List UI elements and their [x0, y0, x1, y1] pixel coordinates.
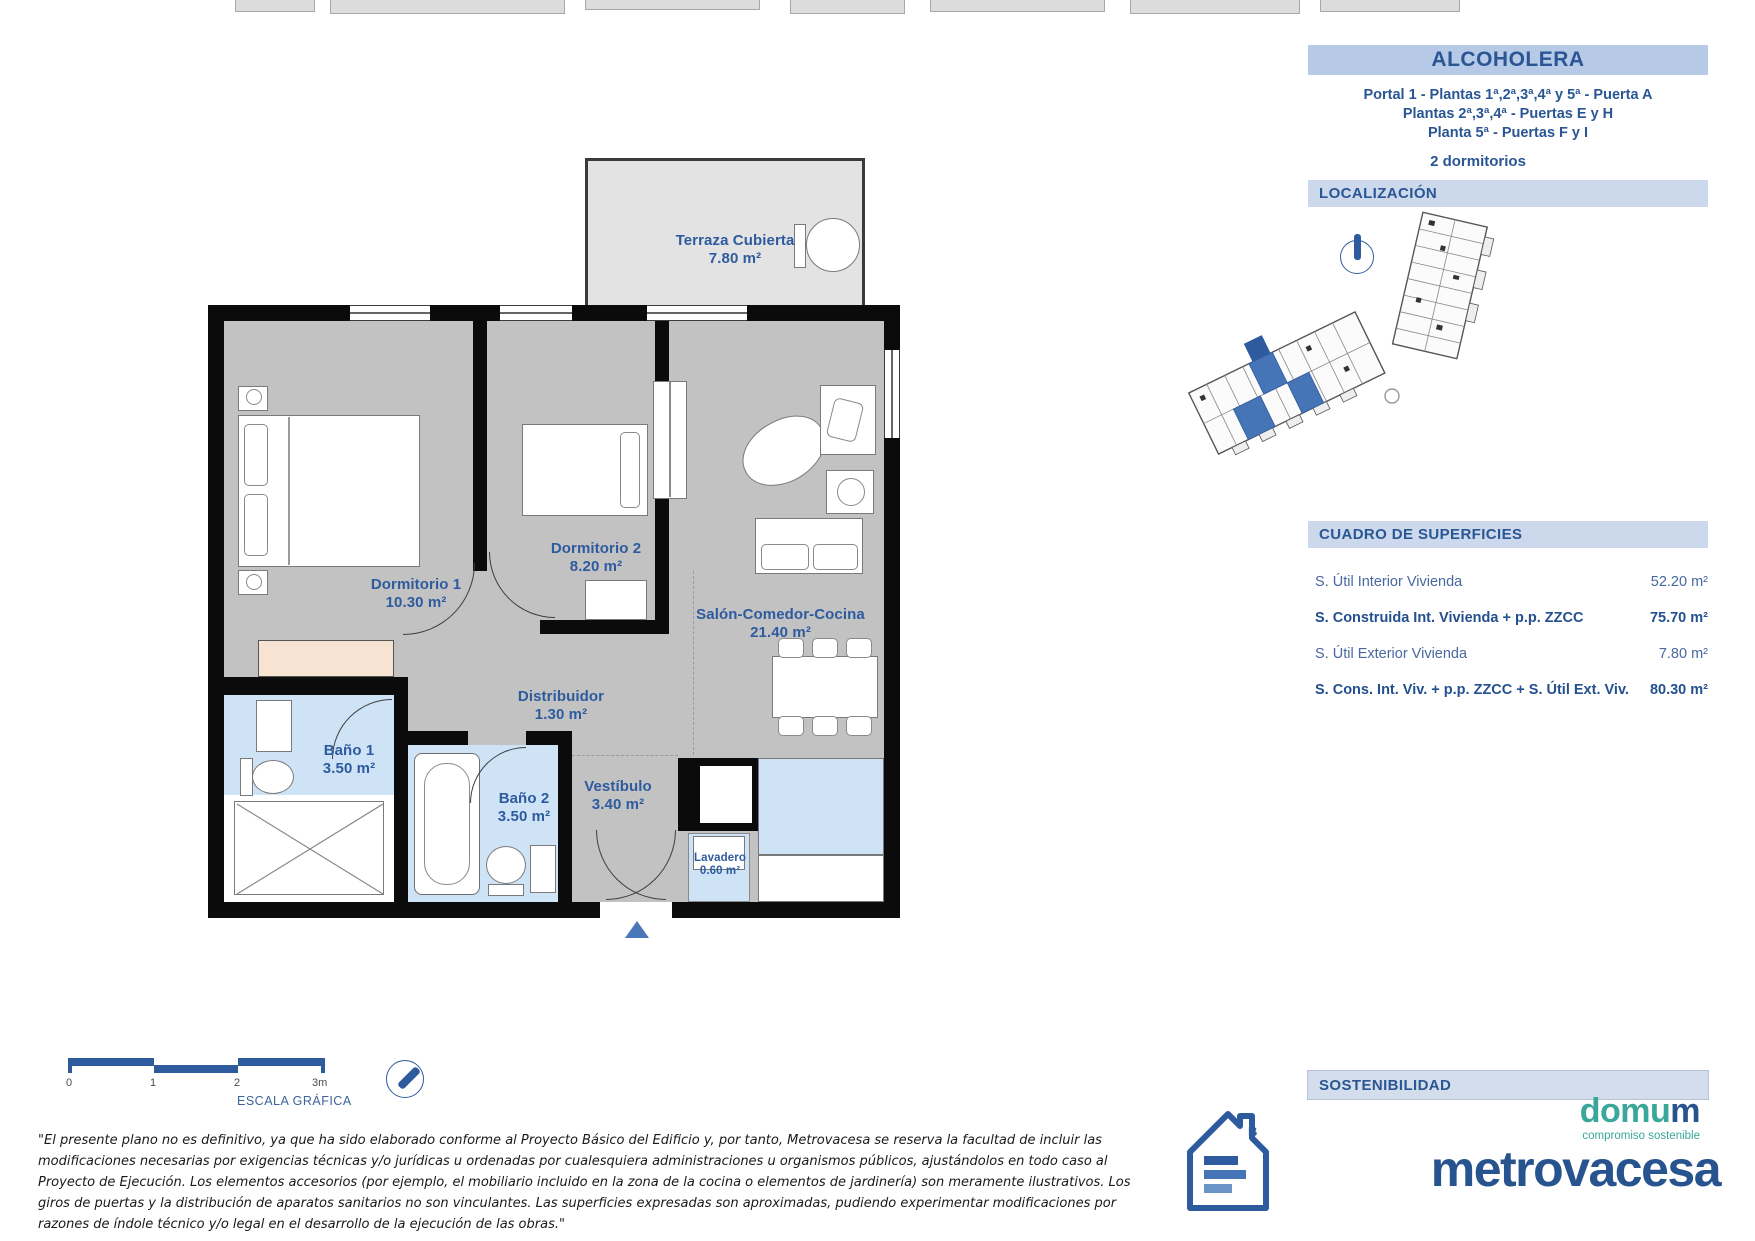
page-title: ALCOHOLERA	[1431, 48, 1584, 71]
disclaimer-text: "El presente plano no es definitivo, ya …	[38, 1130, 1158, 1235]
wall	[224, 677, 394, 695]
surface-value: 80.30 m²	[1650, 682, 1708, 698]
energy-house-icon: B	[1182, 1096, 1277, 1216]
project-title-bar: ALCOHOLERA	[1308, 45, 1708, 75]
portal-line: Portal 1 - Plantas 1ª,2ª,3ª,4ª y 5ª - Pu…	[1308, 86, 1708, 105]
chair	[812, 716, 838, 736]
shower-tray-lines	[235, 802, 385, 896]
room-name: Lavadero	[668, 852, 772, 865]
pillow	[244, 424, 268, 486]
desk	[585, 580, 647, 620]
pillow	[244, 494, 268, 556]
room-area: 1.30 m²	[474, 706, 648, 724]
surface-row: S. Útil Interior Vivienda 52.20 m²	[1315, 574, 1708, 594]
room-area: 0.60 m²	[668, 865, 772, 878]
dining-table	[772, 656, 878, 718]
room-area: 3.50 m²	[274, 760, 424, 778]
wardrobe	[258, 640, 394, 677]
room-name: Baño 1	[274, 742, 424, 760]
room-name: Vestíbulo	[548, 778, 688, 796]
terrace-sliding-door	[647, 305, 747, 321]
bathroom-sink	[530, 845, 556, 893]
section-bar-localizacion: LOCALIZACIÓN	[1308, 180, 1708, 207]
surface-row: S. Construida Int. Vivienda + p.p. ZZCC …	[1315, 610, 1708, 630]
kitchen-appliance-band	[758, 855, 884, 902]
scale-tick: 0	[66, 1077, 72, 1089]
portal-info: Portal 1 - Plantas 1ª,2ª,3ª,4ª y 5ª - Pu…	[1308, 86, 1708, 143]
sofa-cushion	[813, 544, 858, 570]
surface-label: S. Construida Int. Vivienda + p.p. ZZCC	[1315, 610, 1583, 626]
surface-label: S. Cons. Int. Viv. + p.p. ZZCC + S. Útil…	[1315, 682, 1629, 698]
wall	[540, 620, 669, 634]
top-fragment	[1320, 0, 1460, 12]
top-fragment	[585, 0, 760, 10]
entrance-opening	[600, 902, 672, 918]
surface-label: S. Útil Interior Vivienda	[1315, 574, 1462, 590]
window	[350, 305, 430, 321]
room-label-bano1: Baño 1 3.50 m²	[274, 742, 424, 777]
outer-wall-left	[208, 305, 224, 918]
lamp-icon	[246, 574, 262, 590]
zone-dashed-line	[693, 571, 694, 755]
room-name: Terraza Cubierta	[630, 232, 840, 250]
wall	[473, 321, 487, 571]
top-fragment	[1130, 0, 1300, 14]
room-area: 3.40 m²	[548, 796, 688, 814]
scale-tick: 3m	[312, 1077, 327, 1089]
room-name: Dormitorio 2	[510, 540, 682, 558]
wall	[526, 731, 558, 745]
domum-logo-suffix: m	[1670, 1092, 1700, 1130]
room-area: 7.80 m²	[630, 250, 840, 268]
domum-logo-prefix: domu	[1580, 1092, 1671, 1130]
zone-dashed-line	[572, 755, 678, 756]
sink-bowl	[837, 478, 865, 506]
room-label-vestibulo: Vestíbulo 3.40 m²	[548, 778, 688, 813]
outer-wall-bottom	[208, 902, 900, 918]
top-fragment	[930, 0, 1105, 12]
section-label: LOCALIZACIÓN	[1319, 185, 1437, 202]
room-label-lavadero: Lavadero 0.60 m²	[668, 852, 772, 878]
scale-segment	[154, 1065, 238, 1073]
lamp-icon	[246, 389, 262, 405]
bed-fold-line	[288, 417, 290, 565]
scale-tick: 2	[234, 1077, 240, 1089]
scale-segment	[70, 1058, 154, 1066]
room-label-dormitorio1: Dormitorio 1 10.30 m²	[330, 576, 502, 611]
surface-row: S. Útil Exterior Vivienda 7.80 m²	[1315, 646, 1708, 666]
room-name: Dormitorio 1	[330, 576, 502, 594]
window	[500, 305, 572, 321]
room-label-dormitorio2: Dormitorio 2 8.20 m²	[510, 540, 682, 575]
floorplan-sheet: Terraza Cubierta 7.80 m² Dormitorio 1 10…	[0, 0, 1755, 1241]
surface-value: 52.20 m²	[1651, 574, 1708, 590]
shower-tray	[234, 801, 384, 895]
scale-tick: 1	[150, 1077, 156, 1089]
kitchen-counter	[758, 758, 884, 855]
built-in-closet	[653, 381, 687, 499]
top-fragment	[790, 0, 905, 14]
room-area: 8.20 m²	[510, 558, 682, 576]
room-area: 21.40 m²	[663, 624, 898, 642]
shaft-box	[700, 766, 752, 823]
metrovacesa-logo: metrovacesa	[1270, 1140, 1720, 1198]
section-label: CUADRO DE SUPERFICIES	[1319, 526, 1522, 543]
scale-bar: 0 1 2 3m	[60, 1054, 340, 1094]
wall	[655, 321, 669, 381]
top-fragment	[235, 0, 315, 12]
chair	[846, 716, 872, 736]
site-building-right	[1393, 212, 1496, 360]
room-name: Salón-Comedor-Cocina	[663, 606, 898, 624]
site-building-left	[1180, 294, 1388, 461]
scale-cap	[321, 1058, 325, 1073]
portal-line: Planta 5ª - Puertas F y I	[1308, 124, 1708, 143]
portal-line: Plantas 2ª,3ª,4ª - Puertas E y H	[1308, 105, 1708, 124]
surface-value: 7.80 m²	[1659, 646, 1708, 662]
toilet-tank	[488, 884, 524, 896]
bedrooms-count: 2 dormitorios	[1308, 152, 1648, 171]
surface-value: 75.70 m²	[1650, 610, 1708, 626]
domum-logo: domum	[1450, 1092, 1700, 1131]
site-marker-circle	[1385, 389, 1399, 403]
room-label-salon: Salón-Comedor-Cocina 21.40 m²	[663, 606, 898, 641]
room-label-distribuidor: Distribuidor 1.30 m²	[474, 688, 648, 723]
toilet-bowl	[486, 846, 526, 884]
room-name: Distribuidor	[474, 688, 648, 706]
sofa-cushion	[761, 544, 809, 570]
surface-label: S. Útil Exterior Vivienda	[1315, 646, 1467, 662]
section-bar-cuadro: CUADRO DE SUPERFICIES	[1308, 521, 1708, 548]
energy-rating-letter: B	[1248, 1124, 1257, 1139]
pillow	[620, 432, 640, 508]
section-label: SOSTENIBILIDAD	[1319, 1077, 1451, 1094]
surface-row: S. Cons. Int. Viv. + p.p. ZZCC + S. Útil…	[1315, 682, 1708, 702]
top-fragment	[330, 0, 565, 14]
site-plan	[1170, 210, 1550, 480]
room-label-terraza: Terraza Cubierta 7.80 m²	[630, 232, 840, 267]
room-area: 10.30 m²	[330, 594, 502, 612]
entrance-arrow-icon	[625, 921, 649, 938]
scale-caption: ESCALA GRÁFICA	[237, 1094, 352, 1108]
closet-divider	[669, 382, 671, 497]
chair	[778, 716, 804, 736]
window	[884, 350, 900, 438]
scale-segment	[238, 1058, 322, 1066]
wall	[394, 677, 408, 918]
